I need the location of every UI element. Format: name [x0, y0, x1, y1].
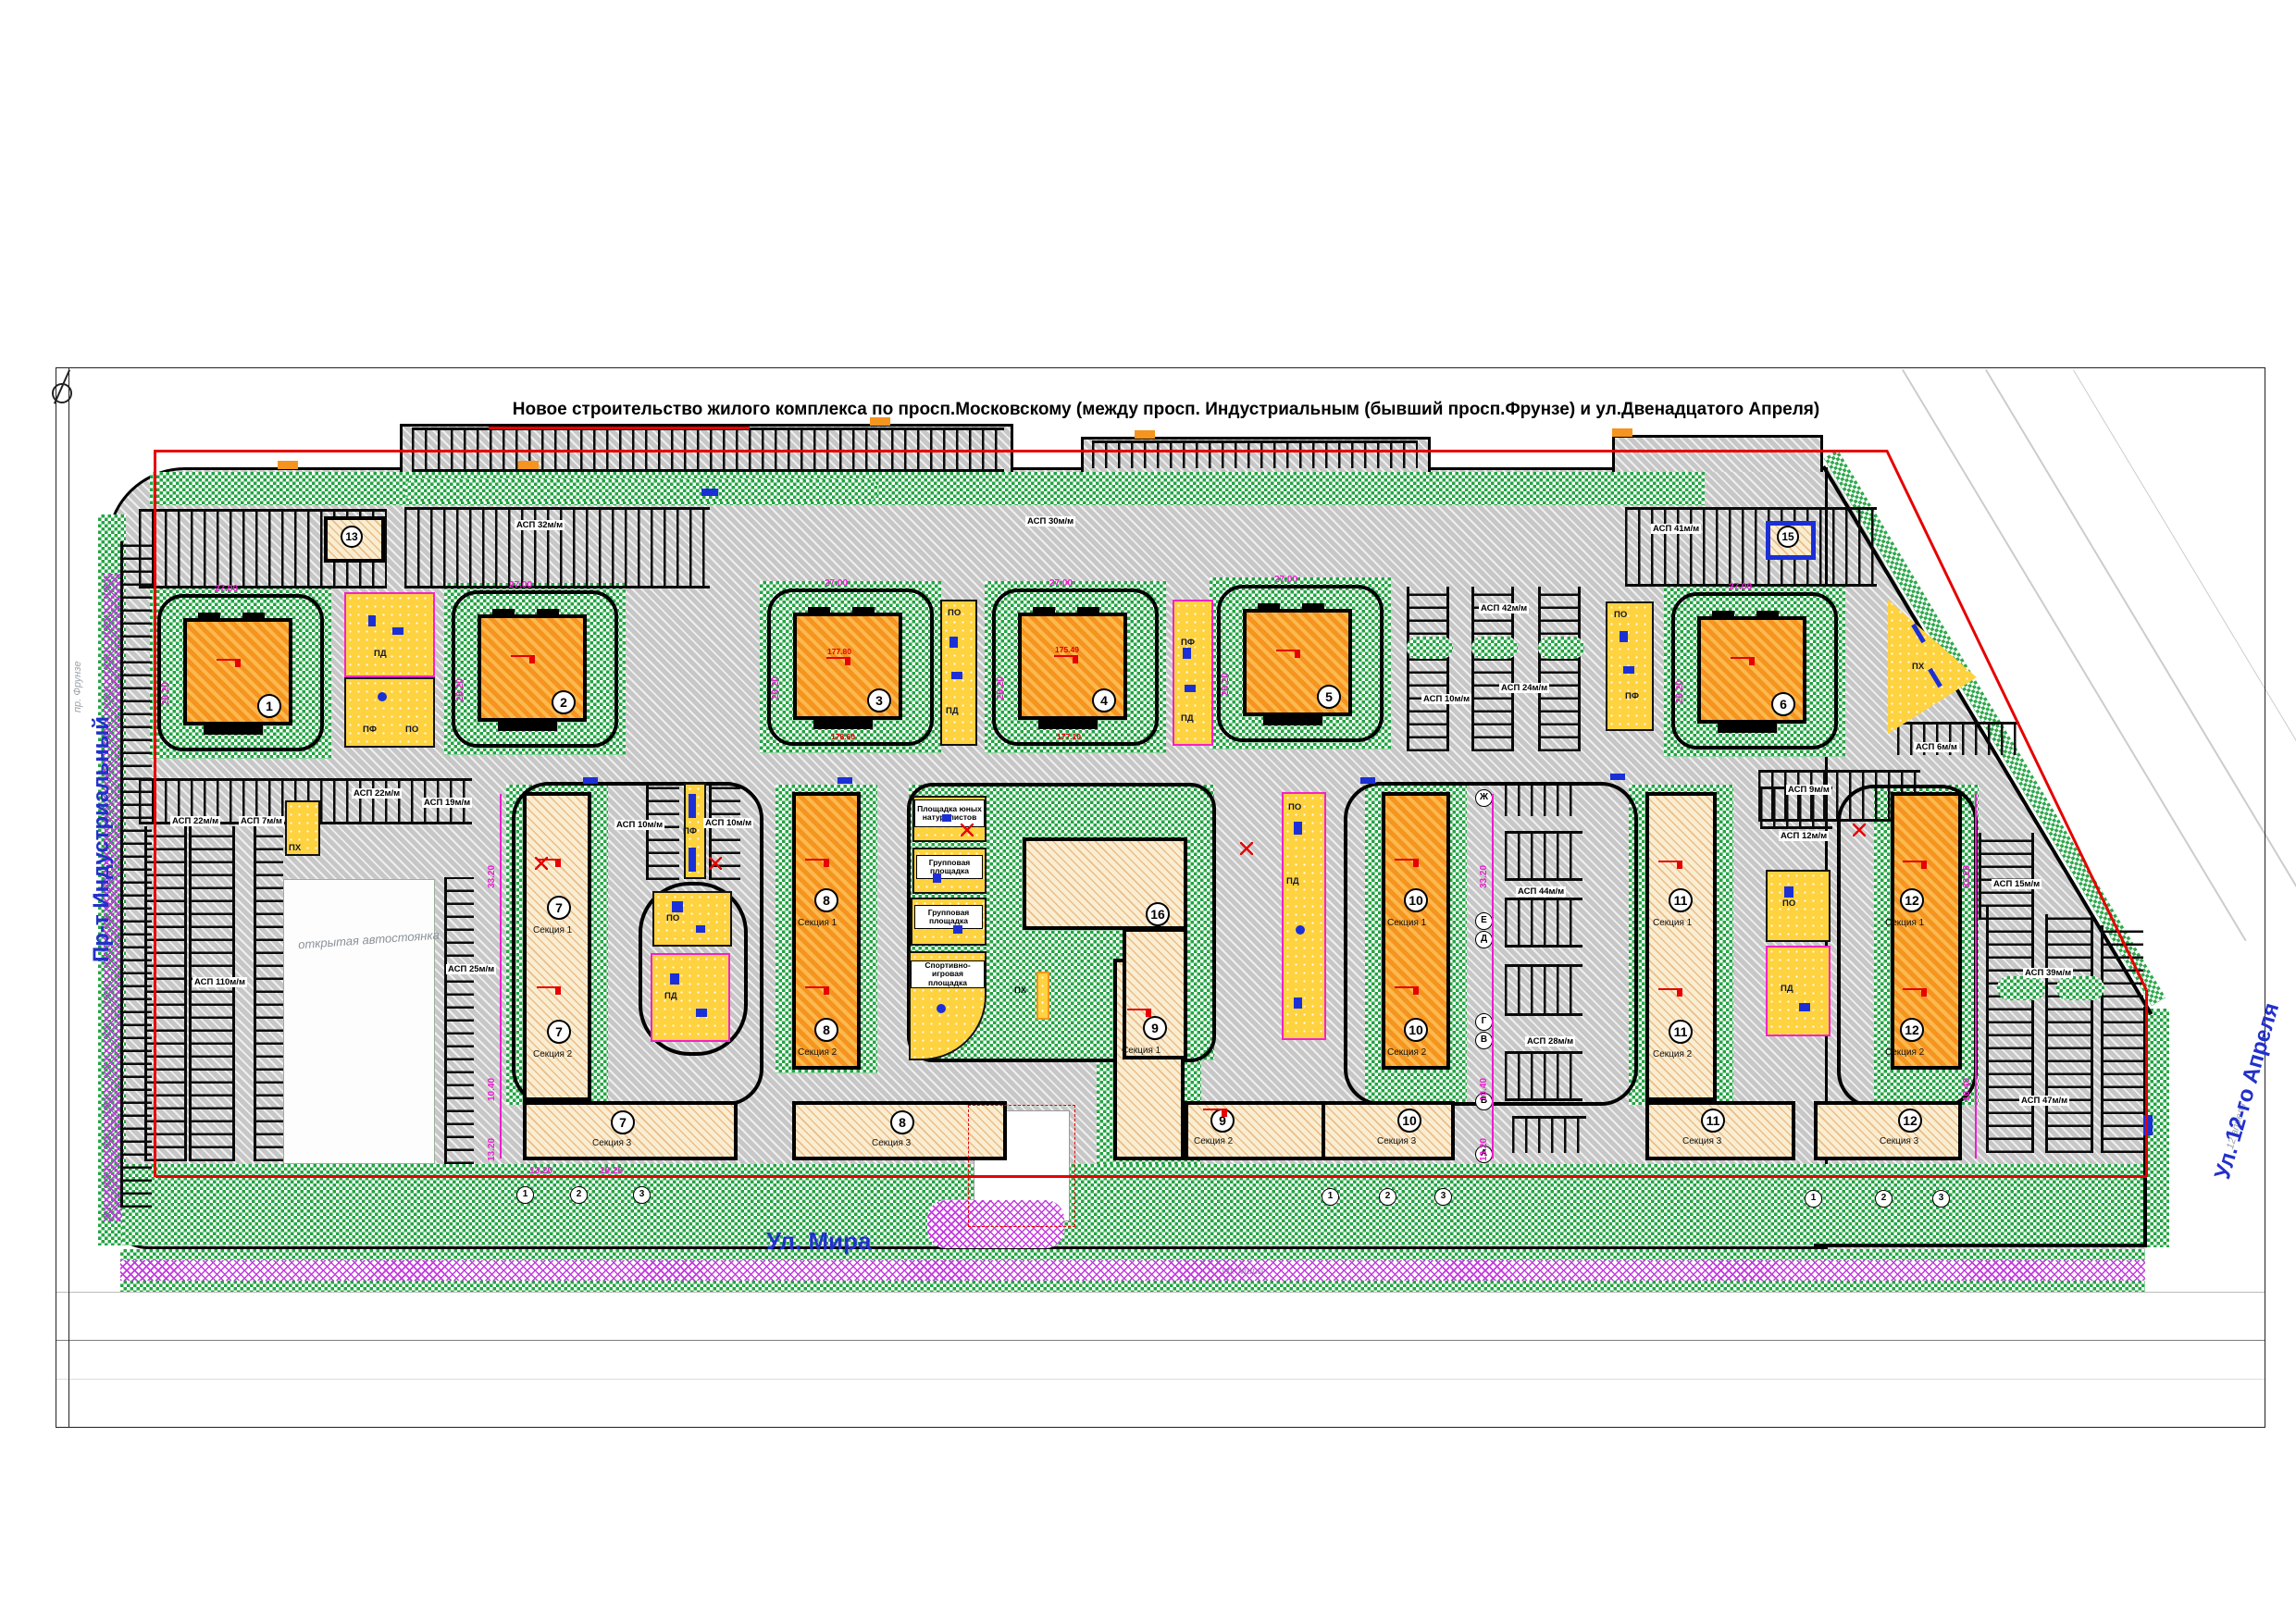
street-label-left: Пр-т Индустриальный [89, 716, 115, 962]
title-red-underline [489, 427, 750, 429]
drawing-title: Новое строительство жилого комплекса по … [490, 400, 1842, 420]
street-label-bottom: Ул. Мира [766, 1227, 871, 1256]
sheet-frame [56, 367, 2265, 1428]
site-plan-sheet: пр. Фрунзе ул. Мира 12 апреля Новое стро… [0, 0, 2296, 1623]
sheet-frame-inner-line [68, 367, 69, 1428]
